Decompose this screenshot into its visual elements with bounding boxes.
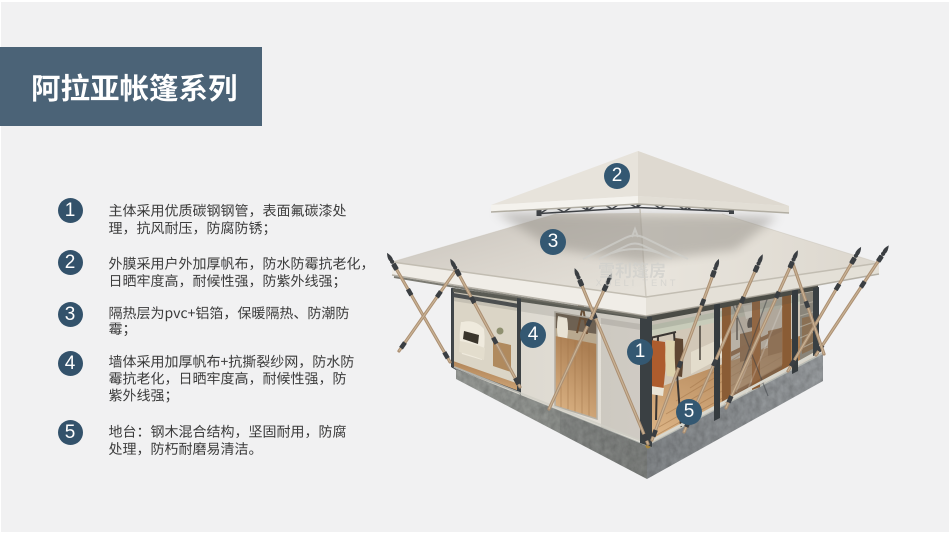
svg-text:XUELI TENT: XUELI TENT: [596, 278, 679, 289]
